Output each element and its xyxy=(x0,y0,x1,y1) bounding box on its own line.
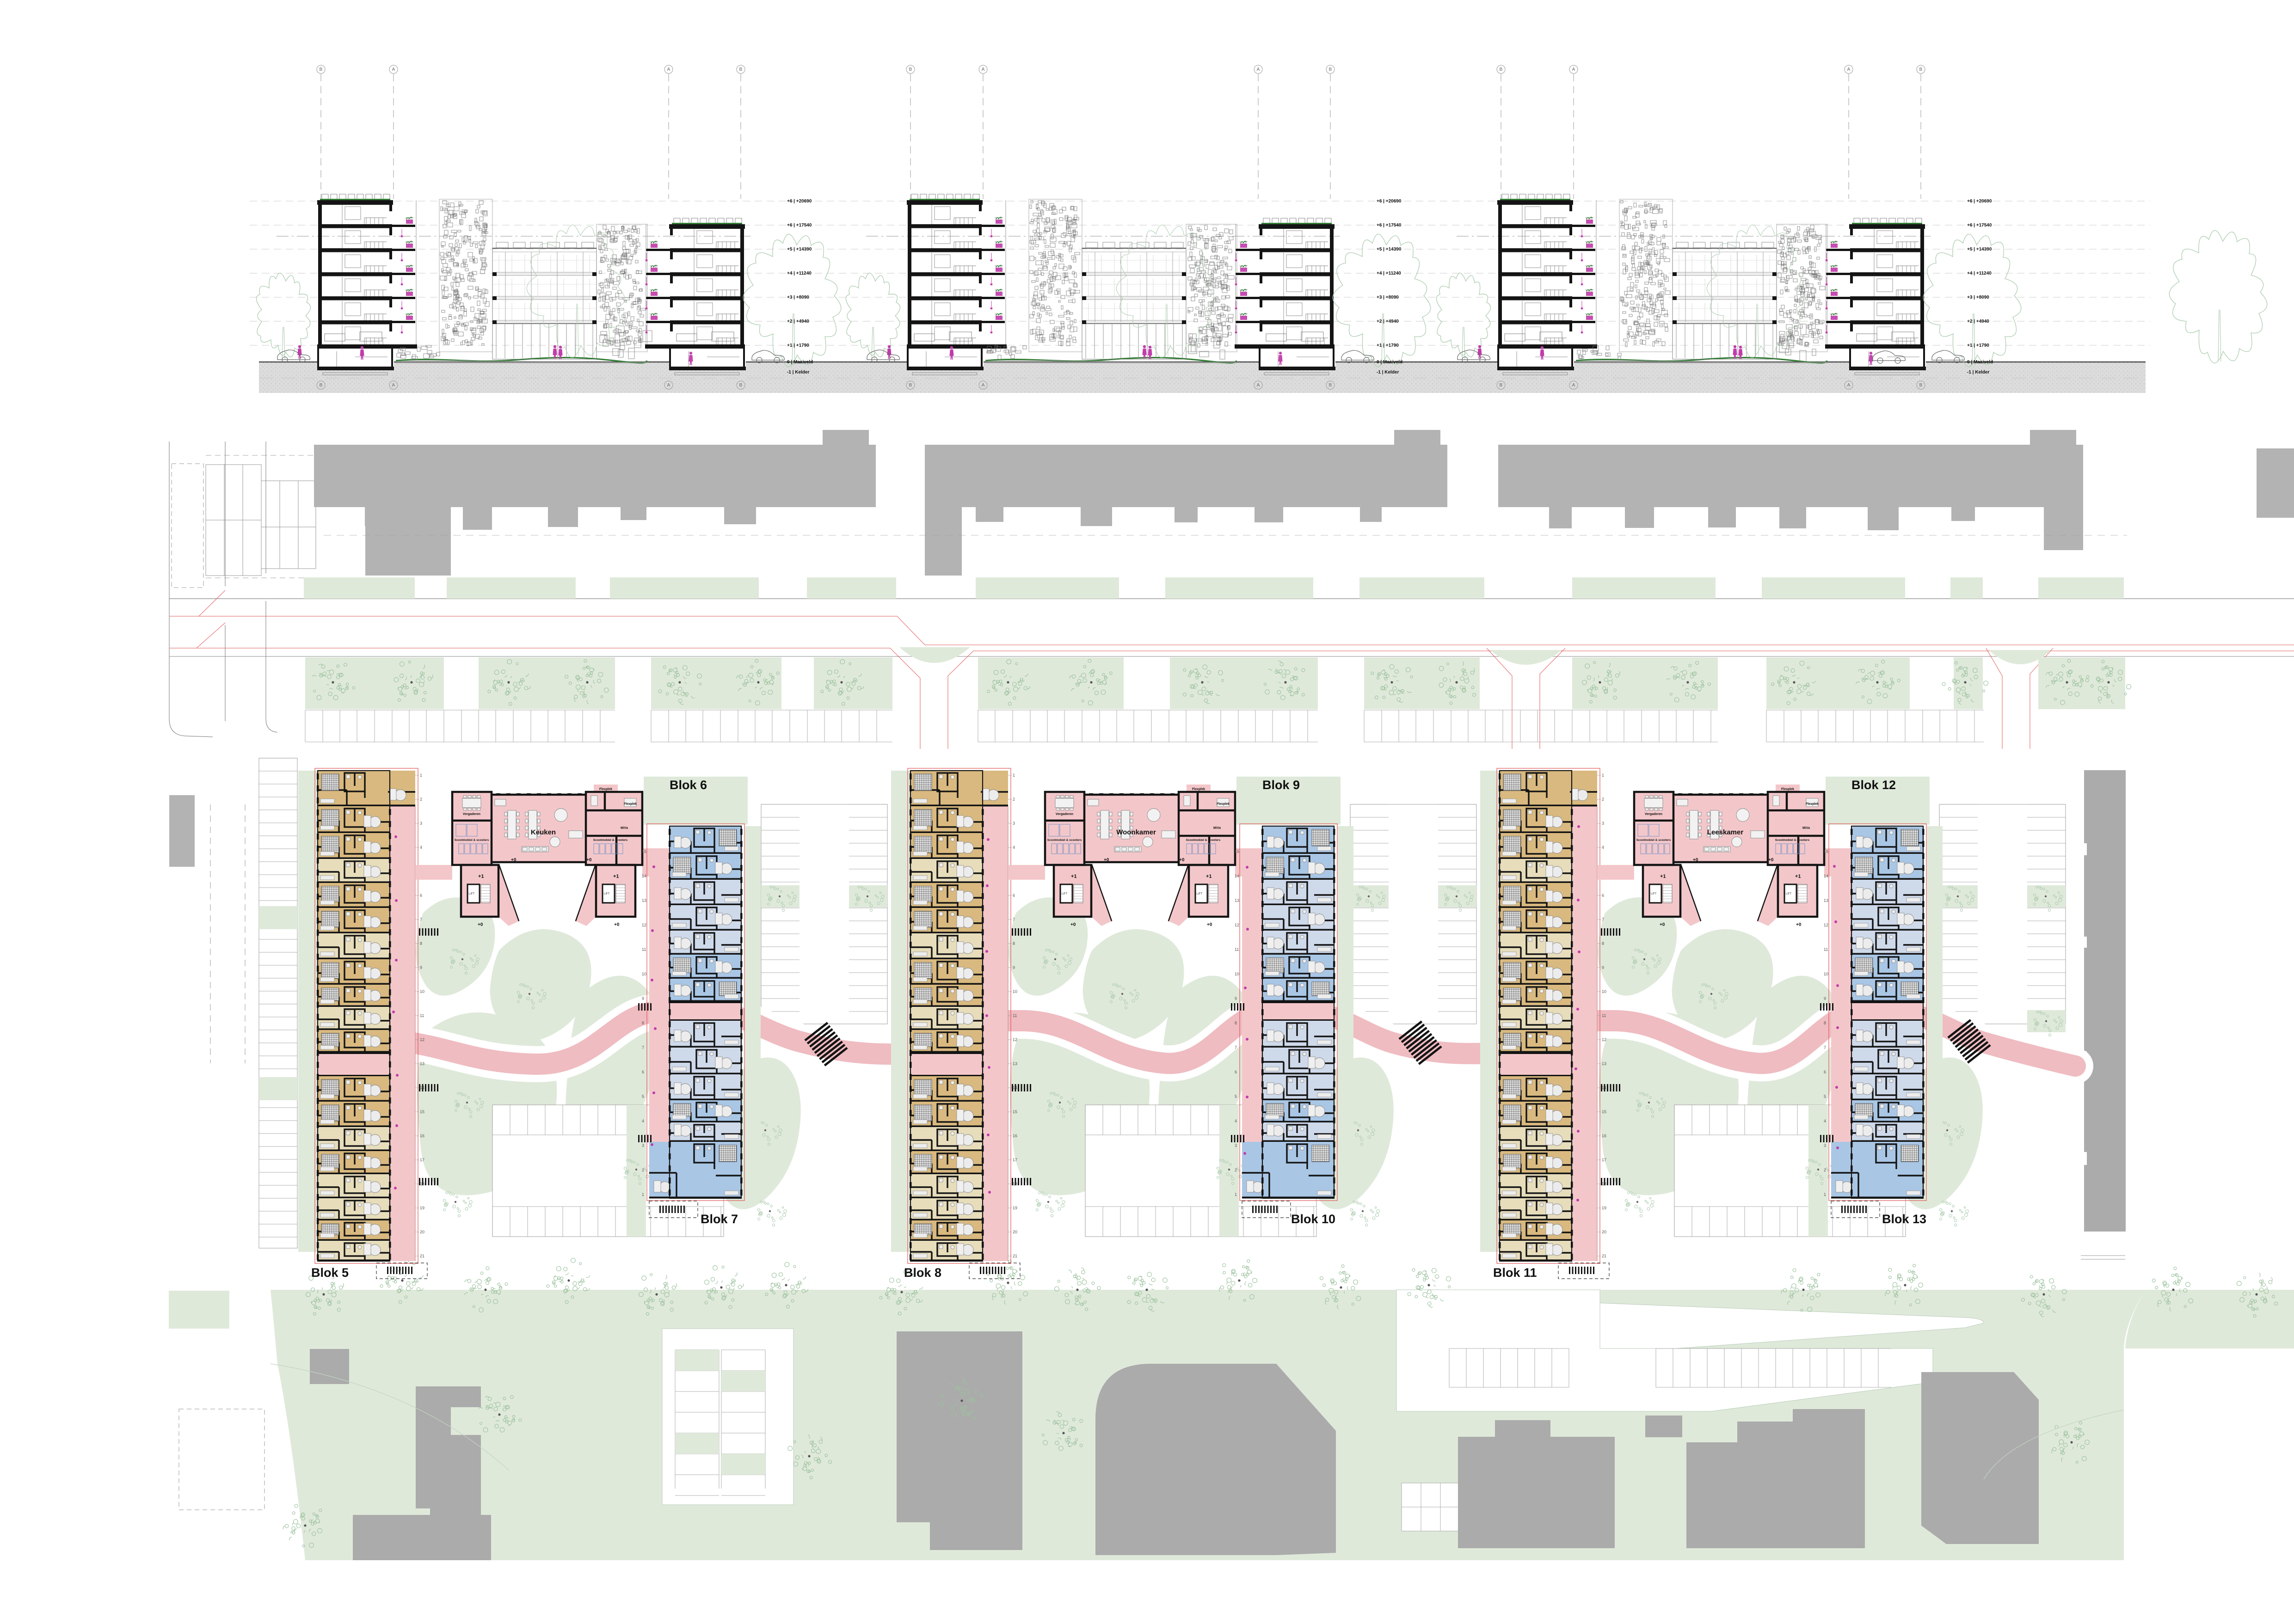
svg-text:A: A xyxy=(982,383,985,388)
svg-text:9: 9 xyxy=(1235,996,1237,1001)
svg-text:Flexplek: Flexplek xyxy=(1781,788,1794,791)
svg-text:-1 | Kelder: -1 | Kelder xyxy=(1967,370,1989,375)
svg-text:B: B xyxy=(739,383,743,388)
svg-text:+1 | +1790: +1 | +1790 xyxy=(787,343,809,348)
svg-text:Scootmobiel & scooters: Scootmobiel & scooters xyxy=(1186,839,1221,842)
svg-text:A: A xyxy=(1847,67,1851,72)
svg-text:Flexplek: Flexplek xyxy=(1192,788,1205,791)
svg-text:8: 8 xyxy=(1824,1021,1826,1025)
svg-text:21: 21 xyxy=(1602,1254,1606,1258)
svg-text:4: 4 xyxy=(1013,845,1015,850)
svg-text:2: 2 xyxy=(1235,1168,1237,1172)
svg-text:6: 6 xyxy=(1824,1070,1826,1074)
svg-text:7: 7 xyxy=(1602,917,1604,922)
svg-text:MiVa: MiVa xyxy=(1802,827,1810,830)
svg-text:+0: +0 xyxy=(511,858,517,863)
svg-text:20: 20 xyxy=(420,1230,424,1234)
svg-text:1: 1 xyxy=(420,773,422,778)
svg-text:4: 4 xyxy=(642,1119,644,1123)
svg-text:+6 | +20690: +6 | +20690 xyxy=(1377,199,1402,204)
svg-text:10: 10 xyxy=(1824,972,1828,976)
svg-text:7: 7 xyxy=(1235,1045,1237,1050)
svg-text:13: 13 xyxy=(420,1061,424,1066)
svg-text:9: 9 xyxy=(420,965,422,970)
svg-text:+0: +0 xyxy=(1207,922,1212,927)
svg-text:12: 12 xyxy=(1013,1037,1017,1042)
svg-text:1: 1 xyxy=(1235,1192,1237,1197)
svg-text:6: 6 xyxy=(1013,893,1015,898)
svg-text:+3 | +8090: +3 | +8090 xyxy=(787,295,809,300)
svg-text:+1 | +1790: +1 | +1790 xyxy=(1967,343,1989,348)
svg-text:+4 | +11240: +4 | +11240 xyxy=(1377,271,1401,276)
svg-text:B: B xyxy=(1500,383,1503,388)
svg-text:0 | Maaiveld: 0 | Maaiveld xyxy=(787,360,813,365)
svg-text:+3 | +8090: +3 | +8090 xyxy=(1967,295,1989,300)
svg-text:2: 2 xyxy=(1824,1168,1826,1172)
svg-text:20: 20 xyxy=(1013,1230,1017,1234)
svg-text:3: 3 xyxy=(1602,821,1604,826)
svg-text:+1: +1 xyxy=(613,874,619,879)
svg-text:+0: +0 xyxy=(1179,858,1185,863)
svg-text:6: 6 xyxy=(1235,1070,1237,1074)
svg-text:+6 | +20690: +6 | +20690 xyxy=(787,199,812,204)
svg-text:B: B xyxy=(320,67,323,72)
svg-text:+0: +0 xyxy=(1796,922,1802,927)
svg-text:15: 15 xyxy=(1235,849,1239,854)
svg-text:Scootmobiel & scooters: Scootmobiel & scooters xyxy=(1636,839,1671,842)
svg-text:LIFT: LIFT xyxy=(1786,893,1792,895)
svg-text:B: B xyxy=(1329,383,1332,388)
svg-text:+0: +0 xyxy=(614,922,620,927)
svg-text:A: A xyxy=(392,383,395,388)
svg-text:13: 13 xyxy=(1013,1061,1017,1066)
svg-text:+0: +0 xyxy=(1070,922,1076,927)
svg-text:14: 14 xyxy=(642,874,646,878)
svg-text:LIFT: LIFT xyxy=(1197,893,1203,895)
svg-text:10: 10 xyxy=(1235,972,1239,976)
svg-text:A: A xyxy=(1847,383,1851,388)
svg-text:4: 4 xyxy=(420,845,422,850)
svg-text:12: 12 xyxy=(1235,923,1239,927)
svg-text:+4 | +11240: +4 | +11240 xyxy=(787,271,812,276)
svg-text:+5 | +14390: +5 | +14390 xyxy=(1967,247,1992,252)
svg-text:A: A xyxy=(667,67,670,72)
svg-text:12: 12 xyxy=(420,1037,424,1042)
svg-text:7: 7 xyxy=(1824,1045,1826,1050)
svg-text:3: 3 xyxy=(1013,821,1015,826)
svg-text:+0: +0 xyxy=(1693,858,1698,863)
svg-text:10: 10 xyxy=(642,972,646,976)
svg-text:Flexplek: Flexplek xyxy=(624,803,637,806)
svg-text:A: A xyxy=(392,67,395,72)
svg-text:8: 8 xyxy=(1013,941,1015,946)
svg-text:8: 8 xyxy=(1602,941,1604,946)
svg-text:Scootmobiel & scooters: Scootmobiel & scooters xyxy=(1775,839,1810,842)
svg-text:2: 2 xyxy=(1013,797,1015,802)
svg-text:-1 | Kelder: -1 | Kelder xyxy=(787,370,809,375)
svg-text:Flexplek: Flexplek xyxy=(1806,803,1819,806)
svg-text:+2 | +4940: +2 | +4940 xyxy=(1967,319,1989,324)
svg-text:11: 11 xyxy=(1013,1013,1017,1018)
svg-text:15: 15 xyxy=(1013,1109,1017,1114)
svg-text:12: 12 xyxy=(642,923,646,927)
svg-text:3: 3 xyxy=(1824,1143,1826,1148)
svg-text:B: B xyxy=(909,383,912,388)
svg-text:4: 4 xyxy=(1824,1119,1826,1123)
svg-text:12: 12 xyxy=(1602,1037,1606,1042)
svg-text:21: 21 xyxy=(420,1254,424,1258)
svg-text:15: 15 xyxy=(420,1109,424,1114)
svg-text:11: 11 xyxy=(642,947,646,952)
svg-text:3: 3 xyxy=(1235,1143,1237,1148)
svg-text:15: 15 xyxy=(1602,1109,1606,1114)
svg-text:19: 19 xyxy=(1602,1206,1606,1210)
svg-text:B: B xyxy=(909,67,912,72)
svg-text:+6 | +17540: +6 | +17540 xyxy=(1377,223,1402,228)
svg-text:19: 19 xyxy=(420,1206,424,1210)
svg-text:10: 10 xyxy=(420,989,424,994)
svg-text:+2 | +4940: +2 | +4940 xyxy=(787,319,809,324)
svg-text:10: 10 xyxy=(1602,989,1606,994)
svg-text:+0: +0 xyxy=(478,922,483,927)
svg-text:A: A xyxy=(1257,383,1260,388)
svg-text:Flexplek: Flexplek xyxy=(1217,803,1230,806)
svg-text:Scootmobiel & scooters: Scootmobiel & scooters xyxy=(1047,839,1082,842)
svg-text:9: 9 xyxy=(642,996,644,1001)
svg-text:A: A xyxy=(1572,383,1575,388)
svg-text:5: 5 xyxy=(1235,1094,1237,1099)
svg-text:8: 8 xyxy=(420,941,422,946)
svg-text:0 | Maaiveld: 0 | Maaiveld xyxy=(1967,360,1993,365)
svg-text:17: 17 xyxy=(1602,1158,1606,1162)
svg-text:+5 | +14390: +5 | +14390 xyxy=(787,247,812,252)
svg-text:+4 | +11240: +4 | +11240 xyxy=(1967,271,1992,276)
svg-text:16: 16 xyxy=(1602,1134,1606,1138)
svg-text:+0: +0 xyxy=(1768,858,1774,863)
svg-text:6: 6 xyxy=(1602,893,1604,898)
svg-text:+0: +0 xyxy=(586,858,592,863)
svg-text:Vergaderen: Vergaderen xyxy=(463,813,480,816)
svg-text:8: 8 xyxy=(642,1021,644,1025)
svg-text:+6 | +17540: +6 | +17540 xyxy=(787,223,812,228)
svg-text:14: 14 xyxy=(1824,874,1828,878)
svg-text:MiVa: MiVa xyxy=(1213,827,1221,830)
svg-text:LIFT: LIFT xyxy=(469,893,475,895)
svg-text:13: 13 xyxy=(1824,898,1828,903)
svg-text:19: 19 xyxy=(1013,1206,1017,1210)
svg-text:1: 1 xyxy=(642,1192,644,1197)
svg-text:B: B xyxy=(739,67,743,72)
svg-text:3: 3 xyxy=(420,821,422,826)
svg-text:13: 13 xyxy=(642,898,646,903)
svg-text:+2 | +4940: +2 | +4940 xyxy=(1377,319,1399,324)
svg-text:7: 7 xyxy=(642,1045,644,1050)
svg-text:15: 15 xyxy=(642,849,646,854)
svg-text:Scootmobiel & scooters: Scootmobiel & scooters xyxy=(593,839,628,842)
svg-text:Keuken: Keuken xyxy=(531,828,556,836)
svg-text:20: 20 xyxy=(1602,1230,1606,1234)
svg-text:+1: +1 xyxy=(478,874,484,879)
svg-text:11: 11 xyxy=(1602,1013,1606,1018)
svg-text:+1: +1 xyxy=(1660,874,1666,879)
svg-text:5: 5 xyxy=(1824,1094,1826,1099)
svg-text:11: 11 xyxy=(1235,947,1239,952)
svg-text:4: 4 xyxy=(1602,845,1604,850)
svg-text:+1: +1 xyxy=(1206,874,1212,879)
svg-text:0 | Maaiveld: 0 | Maaiveld xyxy=(1377,360,1402,365)
svg-text:Leeskamer: Leeskamer xyxy=(1707,828,1744,836)
svg-text:11: 11 xyxy=(1824,947,1828,952)
svg-text:A: A xyxy=(667,383,670,388)
svg-text:17: 17 xyxy=(420,1158,424,1162)
svg-text:A: A xyxy=(1572,67,1575,72)
svg-text:1: 1 xyxy=(1824,1192,1826,1197)
svg-text:7: 7 xyxy=(1013,917,1015,922)
svg-text:16: 16 xyxy=(420,1134,424,1138)
svg-text:B: B xyxy=(1919,383,1923,388)
svg-text:8: 8 xyxy=(1235,1021,1237,1025)
svg-text:LIFT: LIFT xyxy=(1651,893,1657,895)
svg-text:6: 6 xyxy=(420,893,422,898)
svg-text:1: 1 xyxy=(1602,773,1604,778)
svg-text:B: B xyxy=(320,383,323,388)
svg-text:+6 | +20690: +6 | +20690 xyxy=(1967,199,1992,204)
svg-text:+0: +0 xyxy=(1104,858,1109,863)
svg-text:+0: +0 xyxy=(1660,922,1665,927)
svg-text:13: 13 xyxy=(1235,898,1239,903)
svg-text:16: 16 xyxy=(1013,1134,1017,1138)
svg-text:B: B xyxy=(1500,67,1503,72)
svg-text:A: A xyxy=(1257,67,1260,72)
svg-text:5: 5 xyxy=(642,1094,644,1099)
svg-text:13: 13 xyxy=(1602,1061,1606,1066)
svg-text:7: 7 xyxy=(420,917,422,922)
svg-text:9: 9 xyxy=(1602,965,1604,970)
svg-text:3: 3 xyxy=(642,1143,644,1148)
svg-text:4: 4 xyxy=(1235,1119,1237,1123)
svg-text:A: A xyxy=(982,67,985,72)
svg-text:6: 6 xyxy=(642,1070,644,1074)
svg-text:Scootmobiel & scooters: Scootmobiel & scooters xyxy=(455,839,489,842)
svg-text:9: 9 xyxy=(1824,996,1826,1001)
svg-text:12: 12 xyxy=(1824,923,1828,927)
svg-text:Woonkamer: Woonkamer xyxy=(1116,828,1156,836)
svg-text:17: 17 xyxy=(1013,1158,1017,1162)
svg-text:B: B xyxy=(1919,67,1923,72)
svg-text:21: 21 xyxy=(1013,1254,1017,1258)
svg-text:1: 1 xyxy=(1013,773,1015,778)
svg-text:Vergaderen: Vergaderen xyxy=(1645,813,1662,816)
svg-text:+3 | +8090: +3 | +8090 xyxy=(1377,295,1399,300)
svg-text:+1 | +1790: +1 | +1790 xyxy=(1377,343,1399,348)
svg-text:14: 14 xyxy=(1235,874,1239,878)
svg-text:+6 | +17540: +6 | +17540 xyxy=(1967,223,1992,228)
svg-text:11: 11 xyxy=(420,1013,424,1018)
svg-text:9: 9 xyxy=(1013,965,1015,970)
svg-text:15: 15 xyxy=(1824,849,1828,854)
svg-text:Vergaderen: Vergaderen xyxy=(1056,813,1073,816)
svg-text:+5 | +14390: +5 | +14390 xyxy=(1377,247,1402,252)
svg-text:2: 2 xyxy=(642,1168,644,1172)
svg-text:MiVa: MiVa xyxy=(621,827,628,830)
svg-text:Flexplek: Flexplek xyxy=(599,788,612,791)
svg-text:LIFT: LIFT xyxy=(604,893,610,895)
svg-text:-1 | Kelder: -1 | Kelder xyxy=(1377,370,1399,375)
svg-text:+1: +1 xyxy=(1795,874,1801,879)
svg-text:B: B xyxy=(1329,67,1332,72)
svg-text:10: 10 xyxy=(1013,989,1017,994)
svg-text:+1: +1 xyxy=(1071,874,1077,879)
svg-text:2: 2 xyxy=(1602,797,1604,802)
svg-text:2: 2 xyxy=(420,797,422,802)
svg-text:LIFT: LIFT xyxy=(1062,893,1068,895)
